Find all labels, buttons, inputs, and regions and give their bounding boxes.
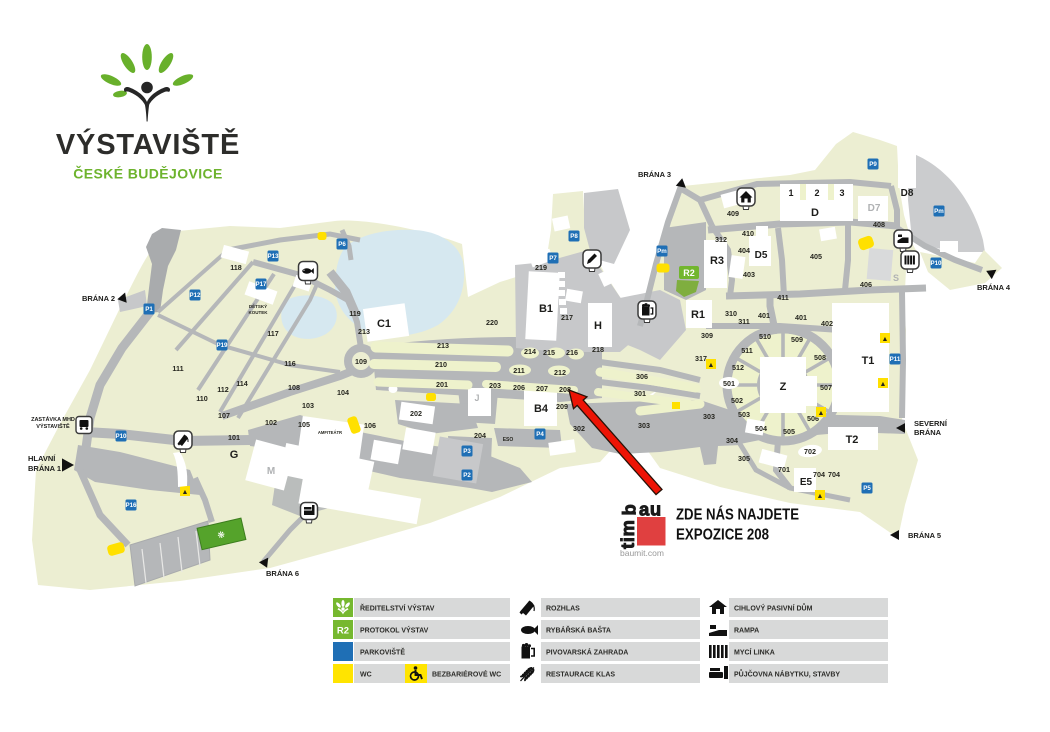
svg-text:P6: P6 (338, 241, 346, 248)
svg-text:508: 508 (814, 353, 826, 362)
svg-text:▲: ▲ (182, 489, 189, 496)
svg-text:105: 105 (298, 420, 310, 429)
svg-text:109: 109 (355, 357, 367, 366)
svg-text:211: 211 (513, 366, 525, 375)
svg-text:317: 317 (695, 354, 707, 363)
svg-text:310: 310 (725, 309, 737, 318)
svg-text:RAMPA: RAMPA (734, 628, 759, 635)
svg-text:P10: P10 (930, 260, 942, 267)
svg-text:G: G (230, 449, 239, 461)
svg-text:401: 401 (795, 313, 807, 322)
svg-text:404: 404 (738, 246, 750, 255)
svg-text:502: 502 (731, 396, 743, 405)
svg-text:505: 505 (783, 427, 795, 436)
svg-text:210: 210 (435, 360, 447, 369)
svg-text:D8: D8 (901, 188, 914, 199)
svg-text:3: 3 (839, 188, 844, 198)
svg-text:HLAVNÍ: HLAVNÍ (28, 454, 56, 463)
svg-text:306: 306 (636, 372, 648, 381)
svg-text:401: 401 (758, 311, 770, 320)
svg-text:SEVERNÍ: SEVERNÍ (914, 419, 948, 428)
svg-text:PIVOVARSKÁ ZAHRADA: PIVOVARSKÁ ZAHRADA (546, 648, 628, 657)
svg-text:702: 702 (804, 447, 816, 456)
svg-text:P2: P2 (463, 472, 471, 479)
svg-text:206: 206 (513, 383, 525, 392)
svg-text:J: J (474, 393, 479, 403)
svg-text:H: H (594, 320, 602, 332)
svg-text:507: 507 (820, 383, 832, 392)
svg-text:▲: ▲ (882, 336, 889, 343)
svg-text:KOUTEK: KOUTEK (249, 310, 269, 315)
svg-text:S: S (893, 273, 899, 283)
svg-text:WC: WC (360, 672, 372, 679)
svg-text:D5: D5 (755, 250, 768, 261)
svg-text:301: 301 (634, 389, 646, 398)
svg-text:P11: P11 (890, 356, 901, 363)
svg-text:119: 119 (349, 309, 361, 318)
svg-text:215: 215 (543, 348, 555, 357)
svg-text:117: 117 (267, 329, 279, 338)
svg-text:108: 108 (288, 383, 300, 392)
svg-text:au: au (639, 499, 662, 520)
svg-text:220: 220 (486, 318, 498, 327)
svg-text:104: 104 (337, 388, 349, 397)
svg-text:2: 2 (814, 188, 819, 198)
svg-text:R3: R3 (710, 255, 724, 267)
svg-text:VÝSTAVIŠTĚ: VÝSTAVIŠTĚ (36, 422, 70, 430)
svg-text:tim: tim (617, 519, 638, 549)
svg-text:PROTOKOL VÝSTAV: PROTOKOL VÝSTAV (360, 626, 429, 635)
svg-text:ZASTÁVKA MHD: ZASTÁVKA MHD (31, 416, 75, 423)
svg-text:RESTAURACE KLAS: RESTAURACE KLAS (546, 672, 615, 679)
svg-text:Pm: Pm (657, 248, 667, 255)
svg-text:ZDE NÁS NAJDETE: ZDE NÁS NAJDETE (676, 505, 799, 524)
svg-text:T2: T2 (846, 434, 859, 446)
svg-text:201: 201 (436, 380, 448, 389)
svg-text:BRÁNA 3: BRÁNA 3 (638, 170, 671, 179)
svg-text:BRÁNA 6: BRÁNA 6 (266, 569, 299, 578)
svg-text:1: 1 (788, 188, 793, 198)
svg-text:D7: D7 (868, 203, 881, 214)
svg-text:219: 219 (535, 263, 547, 272)
svg-text:312: 312 (715, 235, 727, 244)
svg-text:ŘEDITELSTVÍ VÝSTAV: ŘEDITELSTVÍ VÝSTAV (360, 604, 435, 613)
svg-text:217: 217 (561, 313, 573, 322)
svg-text:214: 214 (524, 347, 536, 356)
svg-text:B4: B4 (534, 403, 549, 415)
svg-text:AMFITEÁTR: AMFITEÁTR (318, 430, 342, 435)
svg-text:212: 212 (554, 368, 566, 377)
svg-text:311: 311 (738, 317, 750, 326)
svg-text:baumit.com: baumit.com (620, 548, 664, 558)
svg-text:116: 116 (284, 359, 296, 368)
svg-text:503: 503 (738, 410, 750, 419)
svg-text:101: 101 (228, 433, 240, 442)
svg-text:114: 114 (236, 379, 248, 388)
svg-text:402: 402 (821, 319, 833, 328)
svg-text:107: 107 (218, 411, 230, 420)
svg-text:▲: ▲ (818, 410, 825, 417)
svg-text:P7: P7 (549, 255, 557, 262)
svg-text:103: 103 (302, 401, 314, 410)
svg-text:BRÁNA 4: BRÁNA 4 (977, 283, 1011, 292)
svg-text:410: 410 (742, 229, 754, 238)
svg-text:P13: P13 (267, 253, 279, 260)
svg-text:P9: P9 (869, 161, 877, 168)
svg-text:VÝSTAVIŠTĚ: VÝSTAVIŠTĚ (56, 127, 240, 161)
svg-text:511: 511 (741, 346, 753, 355)
svg-text:P16: P16 (125, 502, 137, 509)
svg-text:E5: E5 (800, 477, 813, 488)
svg-text:204: 204 (474, 431, 486, 440)
svg-text:704: 704 (813, 470, 825, 479)
svg-text:B1: B1 (539, 303, 553, 315)
svg-text:T1: T1 (862, 355, 875, 367)
svg-text:403: 403 (743, 270, 755, 279)
svg-text:P1: P1 (145, 306, 153, 313)
svg-text:R2: R2 (337, 626, 349, 637)
svg-text:M: M (267, 466, 275, 477)
svg-text:203: 203 (489, 381, 501, 390)
svg-text:411: 411 (777, 293, 789, 302)
svg-text:P19: P19 (216, 342, 228, 349)
svg-text:R2: R2 (683, 268, 695, 278)
svg-text:213: 213 (358, 327, 370, 336)
svg-text:C1: C1 (377, 318, 391, 330)
svg-text:701: 701 (778, 465, 790, 474)
svg-text:202: 202 (410, 409, 422, 418)
svg-text:ESO: ESO (503, 437, 514, 443)
svg-text:P4: P4 (536, 431, 544, 438)
svg-text:D: D (811, 207, 819, 219)
svg-text:ROZHLAS: ROZHLAS (546, 606, 580, 613)
svg-text:ČESKÉ BUDĚJOVICE: ČESKÉ BUDĚJOVICE (73, 165, 223, 182)
svg-text:704: 704 (828, 470, 840, 479)
svg-text:406: 406 (860, 280, 872, 289)
svg-text:RYBÁŘSKÁ BAŠTA: RYBÁŘSKÁ BAŠTA (546, 626, 611, 635)
svg-text:305: 305 (738, 454, 750, 463)
svg-text:218: 218 (592, 345, 604, 354)
svg-text:R1: R1 (691, 309, 705, 321)
svg-text:BRÁNA 2: BRÁNA 2 (82, 294, 115, 303)
svg-text:309: 309 (701, 331, 713, 340)
svg-text:216: 216 (566, 348, 578, 357)
svg-text:409: 409 (727, 209, 739, 218)
svg-text:209: 209 (556, 402, 568, 411)
svg-text:Z: Z (780, 381, 787, 393)
svg-text:P12: P12 (189, 292, 201, 299)
svg-text:111: 111 (172, 364, 183, 373)
svg-text:MYCÍ LINKA: MYCÍ LINKA (734, 648, 775, 657)
svg-text:BRÁNA 5: BRÁNA 5 (908, 531, 941, 540)
svg-text:501: 501 (723, 379, 735, 388)
svg-text:118: 118 (230, 263, 242, 272)
svg-text:304: 304 (726, 436, 738, 445)
svg-text:P3: P3 (463, 448, 471, 455)
svg-text:510: 510 (759, 332, 771, 341)
svg-text:213: 213 (437, 341, 449, 350)
svg-text:▲: ▲ (708, 362, 715, 369)
svg-text:106: 106 (364, 421, 376, 430)
svg-text:207: 207 (536, 384, 548, 393)
svg-text:512: 512 (732, 363, 744, 372)
svg-text:102: 102 (265, 418, 277, 427)
svg-text:110: 110 (196, 394, 208, 403)
svg-text:b: b (619, 504, 640, 515)
svg-text:P10: P10 (115, 433, 127, 440)
svg-text:P5: P5 (863, 485, 871, 492)
svg-text:303: 303 (703, 412, 715, 421)
svg-text:P17: P17 (255, 281, 267, 288)
svg-text:BEZBARIÉROVÉ WC: BEZBARIÉROVÉ WC (432, 670, 501, 679)
svg-text:112: 112 (217, 385, 229, 394)
svg-text:509: 509 (791, 335, 803, 344)
svg-text:303: 303 (638, 421, 650, 430)
svg-text:504: 504 (755, 424, 767, 433)
svg-text:▲: ▲ (817, 493, 824, 500)
svg-text:DĚTSKÝ: DĚTSKÝ (249, 302, 267, 309)
svg-text:Pm: Pm (934, 208, 944, 215)
svg-text:▲: ▲ (880, 381, 887, 388)
svg-text:408: 408 (873, 220, 885, 229)
svg-text:EXPOZICE 208: EXPOZICE 208 (676, 527, 769, 544)
svg-text:BRÁNA 1: BRÁNA 1 (28, 464, 61, 473)
svg-text:405: 405 (810, 252, 822, 261)
svg-text:P8: P8 (570, 233, 578, 240)
svg-text:BRÁNA: BRÁNA (914, 428, 942, 437)
svg-text:302: 302 (573, 424, 585, 433)
svg-text:PARKOVIŠTĚ: PARKOVIŠTĚ (360, 648, 405, 657)
